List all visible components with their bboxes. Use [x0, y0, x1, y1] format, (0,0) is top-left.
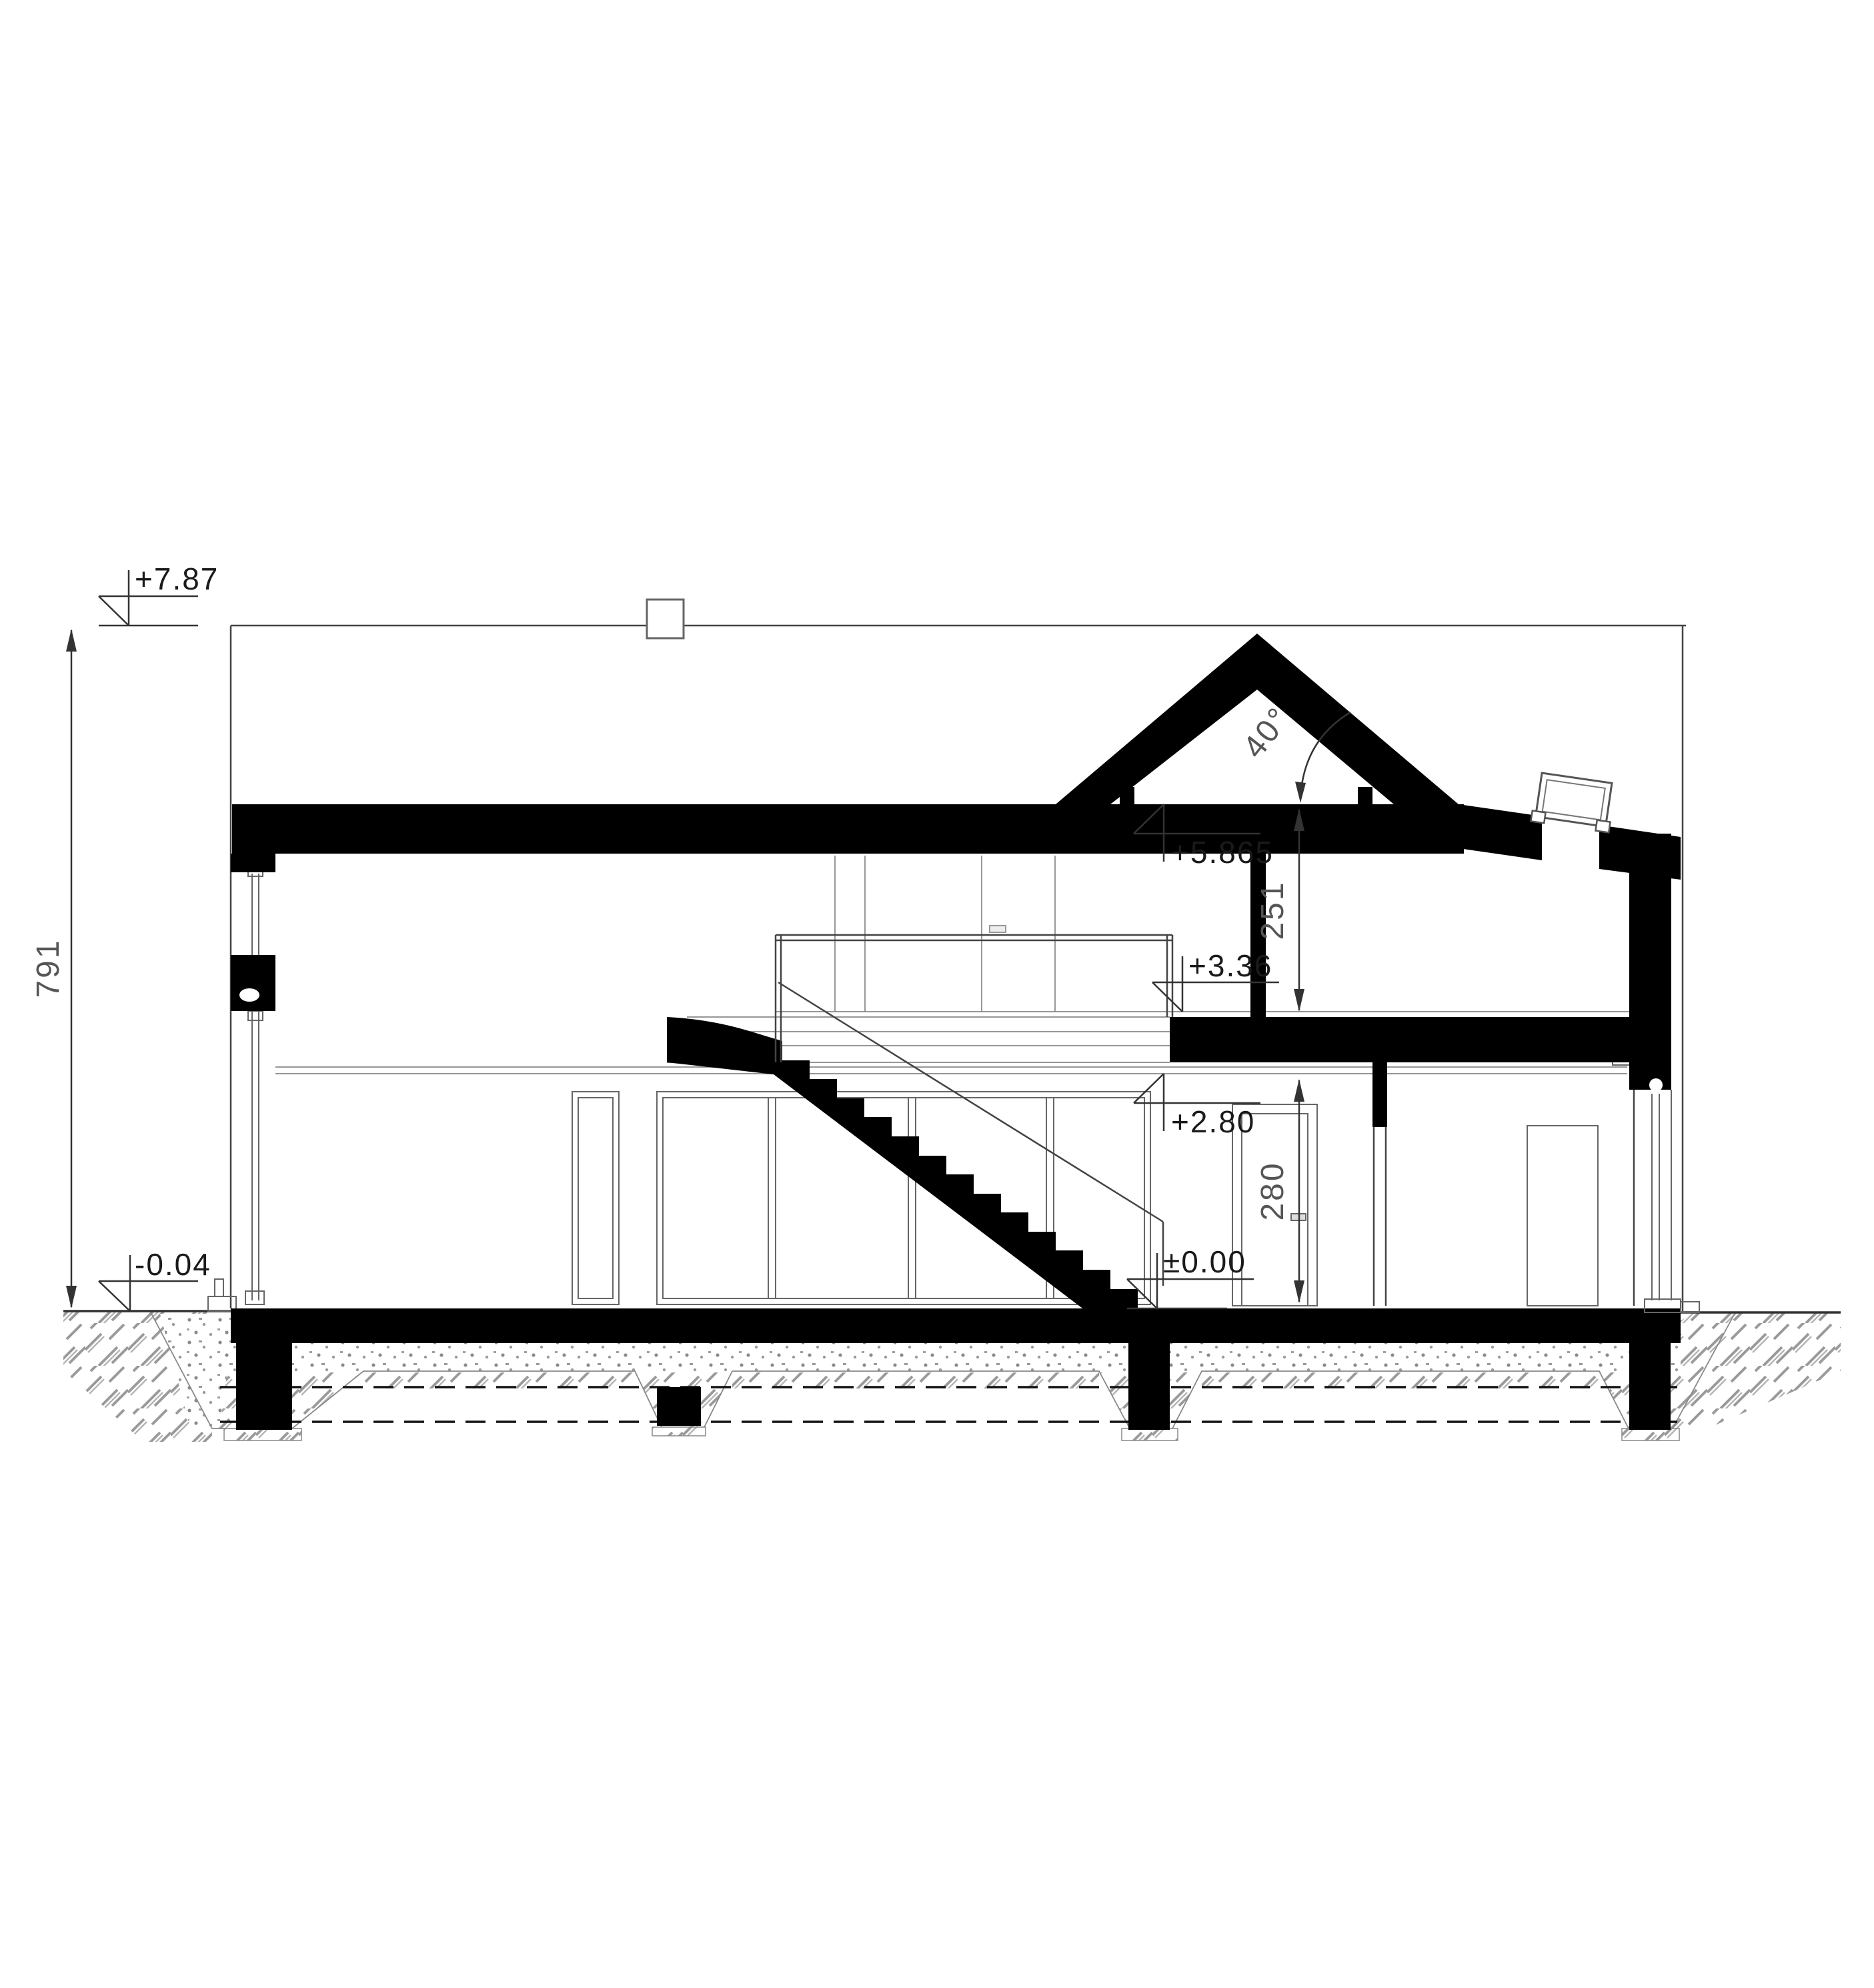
terrace-edge-tab	[215, 1279, 223, 1296]
upper-slab-cut	[1170, 1017, 1629, 1062]
level-marker-ground: -0.04	[99, 1247, 211, 1311]
right-wall-anchor-symbol	[1649, 1078, 1663, 1092]
queen-post-right	[1358, 787, 1372, 804]
level-marker-ridge: +7.87	[99, 562, 219, 626]
cut-structure	[231, 634, 1681, 1343]
level-marker-gf-ceiling: +2.80	[1134, 1074, 1260, 1139]
skylight-flashing-left	[1531, 811, 1545, 824]
dim-attic-height-label: 251	[1255, 880, 1290, 940]
left-wall-shutter-box	[231, 955, 275, 1011]
narrow-window-frame	[572, 1092, 619, 1304]
skylight-flashing-right	[1595, 820, 1610, 833]
ground-slab-cut	[231, 1308, 1681, 1343]
arrow-up-icon	[1294, 1079, 1304, 1102]
dim-gf-height: 280	[1255, 1079, 1304, 1303]
right-wall-cut	[1629, 834, 1671, 1090]
attic-ceiling-band	[232, 804, 1464, 854]
door-opening-beyond	[1527, 1126, 1598, 1306]
footing-right-wall	[1629, 1343, 1671, 1430]
dim-total-height-label: 791	[31, 938, 66, 998]
dim-gf-height-label: 280	[1255, 1161, 1290, 1220]
arrow-down-icon	[66, 1286, 77, 1308]
level-ground-label: -0.04	[135, 1247, 211, 1282]
narrow-window-inner	[578, 1098, 613, 1298]
earth-hatch-strip-2	[732, 1371, 1099, 1388]
left-wall-glazing	[208, 867, 264, 1311]
chimney-vent	[647, 600, 684, 638]
level-gf-floor-label: ±0.00	[1163, 1244, 1246, 1279]
level-attic-ceiling-label: +5.865	[1171, 835, 1274, 870]
annotations: 791 +7.87 -0.04 +5.865	[31, 562, 1350, 1311]
gravel-bed	[212, 1343, 1681, 1372]
dim-total-height: 791	[31, 629, 77, 1308]
arrow-down-icon	[1294, 989, 1304, 1012]
attic-partitions	[835, 856, 1055, 1012]
gf-interior-wall-cut	[1372, 1062, 1387, 1127]
level-attic-floor-label: +3.36	[1188, 948, 1272, 983]
level-gf-ceiling-label: +2.80	[1171, 1104, 1255, 1139]
shutter-roller-symbol	[239, 988, 259, 1002]
partition-door-handle	[990, 926, 1006, 932]
right-wall-glazing	[1634, 1090, 1699, 1312]
lean-strip-left	[224, 1428, 301, 1440]
footing-stair-wall	[1128, 1343, 1170, 1430]
lean-strip-stair	[1122, 1428, 1178, 1440]
level-marker-gf-floor: ±0.00	[1127, 1244, 1254, 1308]
earth-hatch-strip-1	[363, 1371, 635, 1388]
footing-middle	[657, 1387, 701, 1426]
left-wall-head	[231, 854, 275, 872]
arrow-down-icon	[1295, 782, 1306, 803]
queen-post-left	[1120, 787, 1134, 804]
lean-strip-right	[1622, 1428, 1679, 1440]
section-drawing: 791 +7.87 -0.04 +5.865	[0, 0, 1874, 1988]
skylight	[1531, 772, 1615, 832]
level-ridge-label: +7.87	[135, 562, 219, 596]
roof-left-slope	[1056, 634, 1257, 804]
lower-window-head-detail	[248, 1011, 263, 1020]
footing-left-wall	[236, 1343, 292, 1430]
arrow-down-icon	[1294, 1280, 1304, 1303]
arrow-up-icon	[66, 629, 77, 652]
lower-window-sill	[245, 1291, 264, 1304]
earth-hatch-strip-3	[1202, 1371, 1599, 1388]
lean-strip-mid	[652, 1427, 706, 1436]
